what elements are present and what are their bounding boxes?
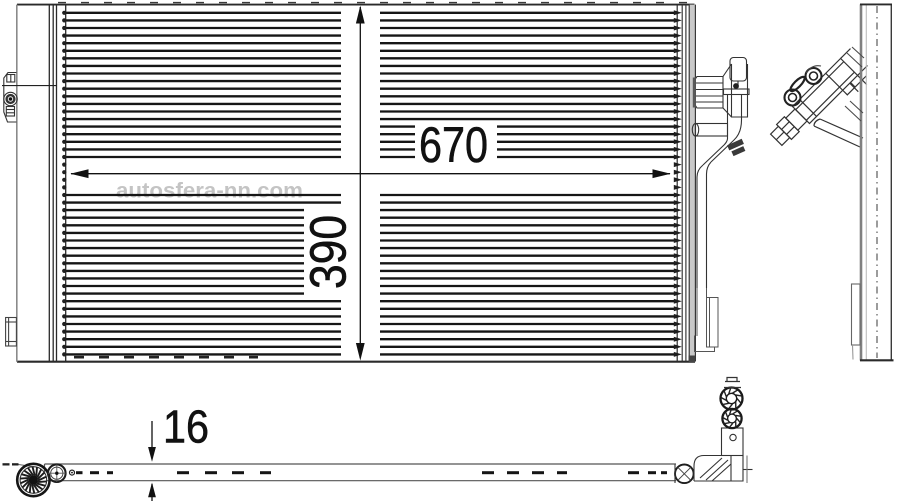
svg-text:390: 390	[300, 215, 357, 289]
svg-text:670: 670	[419, 117, 488, 173]
svg-text:16: 16	[163, 401, 209, 453]
svg-text:autosfera-nn.com: autosfera-nn.com	[116, 180, 303, 203]
